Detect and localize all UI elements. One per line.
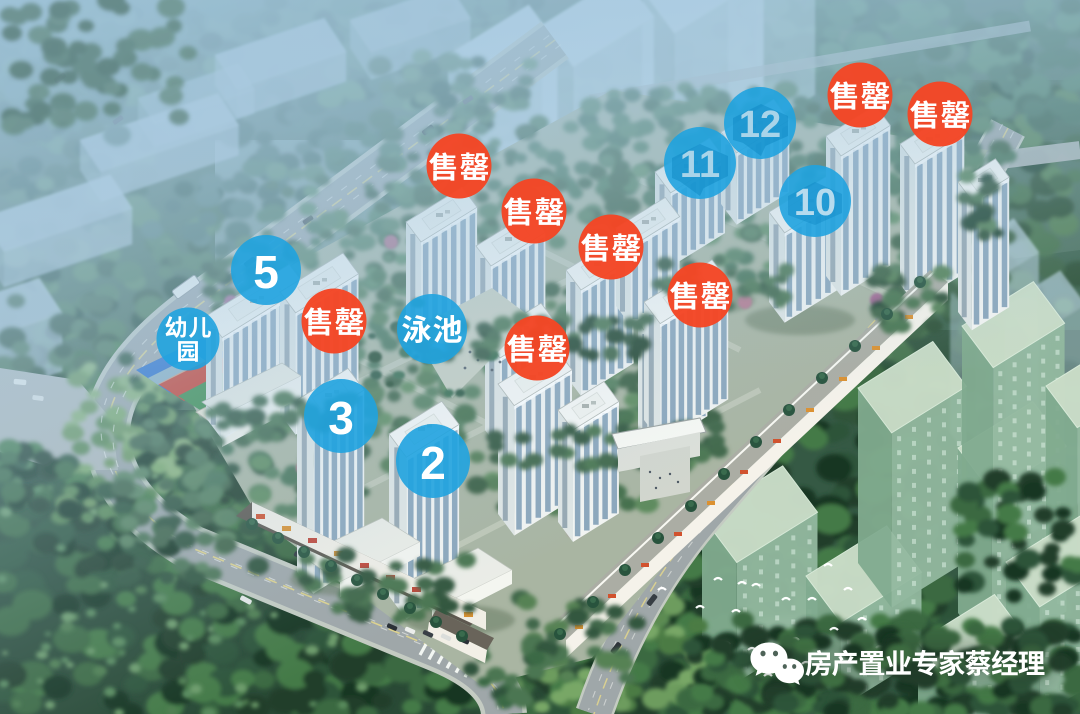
svg-text:2: 2 (420, 437, 446, 489)
svg-text:5: 5 (253, 246, 279, 298)
svg-text:3: 3 (328, 392, 354, 444)
